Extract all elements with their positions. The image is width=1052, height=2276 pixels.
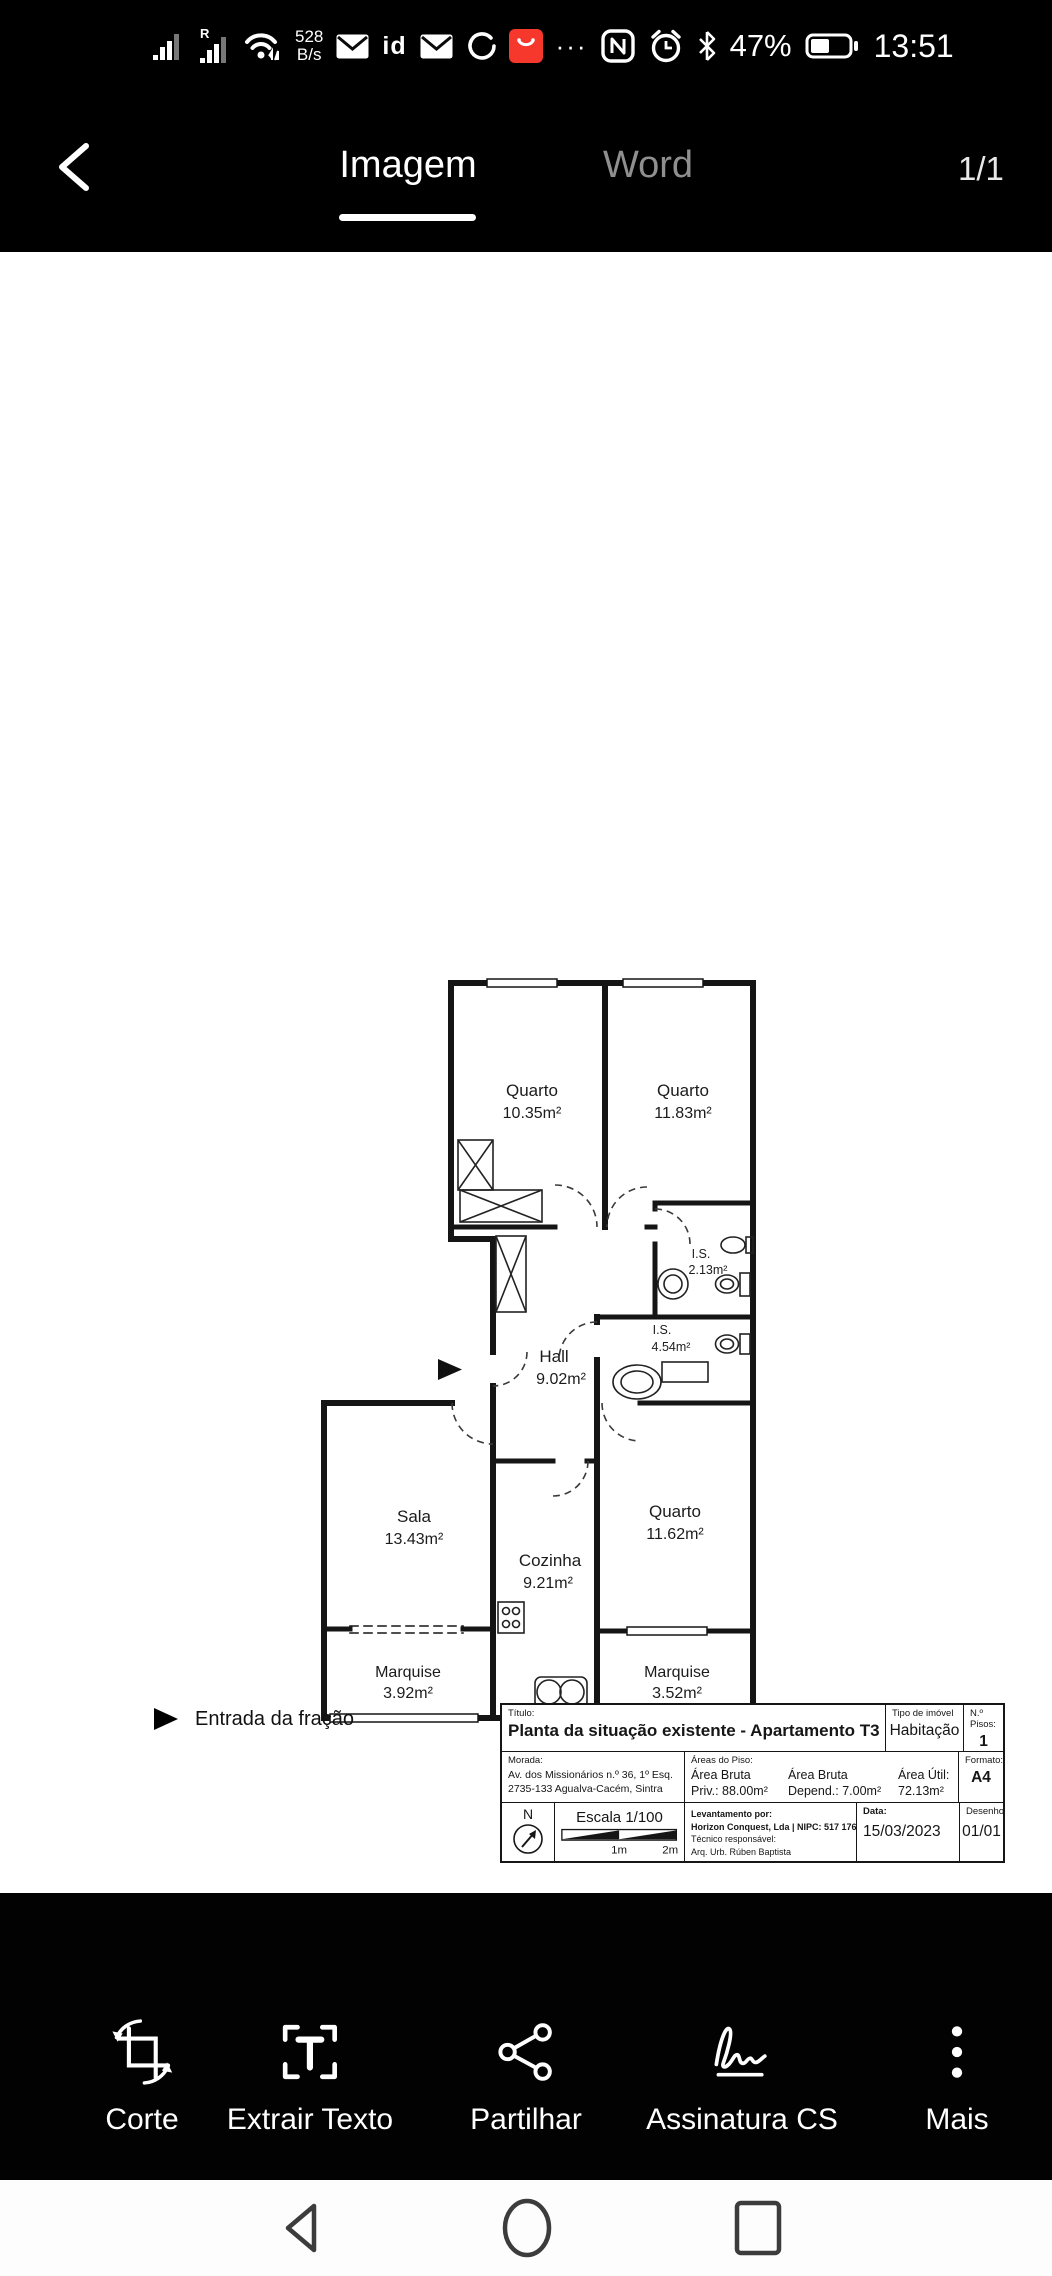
bluetooth-icon <box>697 30 717 62</box>
alarm-icon <box>648 28 684 64</box>
north-compass-cell: N <box>502 1803 555 1861</box>
document-canvas[interactable]: Quarto 10.35m² Quarto 11.83m² I.S. 2.13m… <box>0 252 1052 1893</box>
tab-imagem[interactable]: Imagem <box>339 144 476 187</box>
room-label: I.S. <box>692 1247 711 1261</box>
svg-text:2m: 2m <box>662 1844 678 1856</box>
wifi-icon <box>244 29 282 63</box>
survey-label: Levantamento por: <box>691 1808 850 1821</box>
technician-label: Técnico responsável: <box>691 1833 850 1846</box>
address-label: Morada: <box>508 1755 678 1766</box>
floors-label: N.º Pisos: <box>970 1708 997 1730</box>
svg-text:1m: 1m <box>611 1844 627 1856</box>
crop-rotate-icon <box>109 2019 175 2085</box>
bottom-toolbar: Corte Extrair Texto Partilhar Assin <box>0 1893 1052 2180</box>
room-label: I.S. <box>653 1323 672 1337</box>
nav-recents-button[interactable] <box>733 2199 783 2257</box>
nav-back-button[interactable] <box>279 2201 321 2255</box>
share-button[interactable]: Partilhar <box>470 2019 582 2137</box>
clock: 13:51 <box>874 28 954 65</box>
room-area: 3.92m² <box>383 1685 433 1702</box>
tab-active-underline <box>339 214 476 221</box>
areas-cell: Áreas do Piso: Área Bruta Priv.: 88.00m²… <box>685 1752 959 1802</box>
signature-button[interactable]: Assinatura CS <box>646 2019 838 2137</box>
area-util: Área Útil: <box>898 1768 952 1784</box>
room-area: 9.21m² <box>523 1575 573 1592</box>
entrance-legend-label: Entrada da fração <box>195 1708 354 1731</box>
room-label: Quarto <box>657 1081 709 1100</box>
survey-company: Horizon Conquest, Lda | NIPC: 517 176 29… <box>691 1821 850 1834</box>
tab-word[interactable]: Word <box>603 144 693 187</box>
entrance-arrow-icon <box>438 1359 462 1380</box>
more-button[interactable]: Mais <box>924 2019 990 2137</box>
share-icon <box>493 2019 559 2085</box>
format-label: Formato: <box>965 1755 1003 1766</box>
room-label: Cozinha <box>519 1551 582 1570</box>
floors-value: 1 <box>979 1733 988 1751</box>
extract-text-button-label: Extrair Texto <box>227 2103 393 2137</box>
status-bar: R 528 B/s id <box>0 0 1052 92</box>
date-label: Data: <box>863 1806 953 1817</box>
sheet-cell: Desenho 01/01 <box>960 1803 1003 1861</box>
area-bruta-priv-value: Priv.: 88.00m² <box>691 1784 788 1800</box>
technician-name: Arq. Urb. Rúben Baptista <box>691 1846 850 1859</box>
sheet-value: 01/01 <box>962 1823 1001 1841</box>
room-area: 4.54m² <box>652 1340 691 1354</box>
room-area: 13.43m² <box>385 1531 444 1548</box>
format-value: A4 <box>971 1769 991 1787</box>
more-vertical-icon <box>924 2019 990 2085</box>
back-button[interactable] <box>52 142 96 192</box>
area-util-value: 72.13m² <box>898 1784 952 1800</box>
gmail-icon <box>336 34 369 59</box>
screen: R 528 B/s id <box>0 0 1052 2276</box>
format-cell: Formato: A4 <box>959 1752 1003 1802</box>
property-type-label: Tipo de imóvel <box>892 1708 953 1719</box>
battery-percent: 47% <box>730 28 792 64</box>
property-type-value: Habitação <box>890 1722 960 1740</box>
aliexpress-icon <box>509 29 543 63</box>
tab-bar: Imagem Word 1/1 <box>0 92 1052 252</box>
scale-label: Escala 1/100 <box>576 1809 663 1826</box>
north-compass-icon: N <box>507 1806 549 1858</box>
title-block: Título: Planta da situação existente - A… <box>500 1703 1005 1863</box>
room-area: 2.13m² <box>689 1263 728 1277</box>
room-label: Hall <box>539 1347 568 1366</box>
room-label: Quarto <box>649 1502 701 1521</box>
date-cell: Data: 15/03/2023 <box>857 1803 960 1861</box>
area-bruta-dep: Área Bruta <box>788 1768 898 1784</box>
floors-cell: N.º Pisos: 1 <box>964 1705 1003 1751</box>
nav-home-button[interactable] <box>499 2197 555 2259</box>
scale-bar: 1m 2m <box>561 1826 679 1856</box>
page-indicator: 1/1 <box>958 150 1004 188</box>
signal-bars-icon <box>152 29 184 63</box>
extract-text-button[interactable]: Extrair Texto <box>227 2019 393 2137</box>
signature-button-label: Assinatura CS <box>646 2103 838 2137</box>
entrance-triangle-icon <box>153 1707 179 1731</box>
room-label: Marquise <box>375 1664 441 1681</box>
android-nav-bar <box>0 2180 1052 2276</box>
room-area: 11.83m² <box>654 1105 712 1122</box>
room-label: Marquise <box>644 1664 710 1681</box>
sheet-label: Desenho <box>966 1806 1003 1817</box>
scale-cell: Escala 1/100 1m 2m <box>555 1803 685 1861</box>
entrance-legend: Entrada da fração <box>153 1707 354 1731</box>
id-app-icon: id <box>382 32 406 61</box>
room-label: Quarto <box>506 1081 558 1100</box>
survey-cell: Levantamento por: Horizon Conquest, Lda … <box>685 1803 857 1861</box>
share-button-label: Partilhar <box>470 2103 582 2137</box>
room-area: 11.62m² <box>646 1526 704 1543</box>
network-speed: 528 B/s <box>295 28 323 64</box>
floorplan-room-labels: Quarto 10.35m² Quarto 11.83m² I.S. 2.13m… <box>375 1081 727 1702</box>
overflow-dots-icon: ··· <box>556 31 588 62</box>
svg-text:R: R <box>200 26 210 41</box>
area-bruta-dep-value: Depend.: 7.00m² <box>788 1784 898 1800</box>
room-area: 9.02m² <box>536 1371 586 1388</box>
area-bruta-priv: Área Bruta <box>691 1768 788 1784</box>
signature-icon <box>709 2019 775 2085</box>
battery-icon <box>805 31 859 61</box>
svg-text:N: N <box>523 1806 533 1822</box>
crop-button[interactable]: Corte <box>105 2019 178 2137</box>
more-button-label: Mais <box>925 2103 988 2137</box>
mail-icon <box>420 34 453 59</box>
title-cell: Título: Planta da situação existente - A… <box>502 1705 886 1751</box>
sync-icon <box>466 31 496 61</box>
floorplan-image: Quarto 10.35m² Quarto 11.83m² I.S. 2.13m… <box>310 974 760 1727</box>
room-label: Sala <box>397 1507 432 1526</box>
room-area: 3.52m² <box>652 1685 702 1702</box>
crop-button-label: Corte <box>105 2103 178 2137</box>
drawing-title: Planta da situação existente - Apartamen… <box>508 1721 879 1741</box>
title-label: Título: <box>508 1708 879 1719</box>
address-line1: Av. dos Missionários n.º 36, 1º Esq. <box>508 1769 678 1783</box>
address-cell: Morada: Av. dos Missionários n.º 36, 1º … <box>502 1752 685 1802</box>
signal-bars-roaming-icon: R <box>197 26 231 66</box>
address-line2: 2735-133 Agualva-Cacém, Sintra <box>508 1783 678 1797</box>
extract-text-icon <box>277 2019 343 2085</box>
property-type-cell: Tipo de imóvel Habitação <box>886 1705 964 1751</box>
nfc-icon <box>601 29 635 63</box>
areas-label: Áreas do Piso: <box>691 1755 952 1766</box>
date-value: 15/03/2023 <box>863 1823 953 1841</box>
room-area: 10.35m² <box>503 1105 562 1122</box>
